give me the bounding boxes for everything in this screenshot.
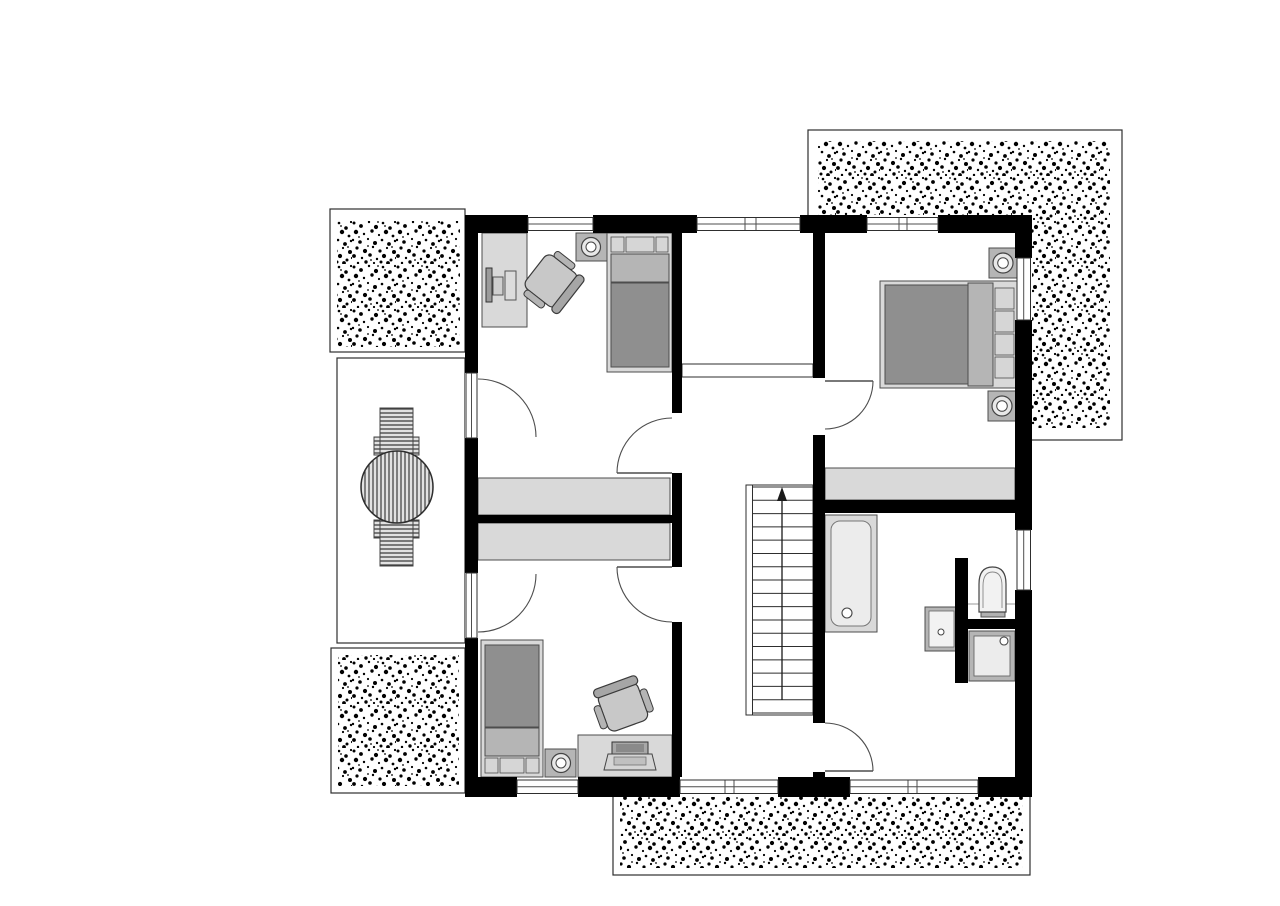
round-parasol <box>361 451 433 523</box>
wardrobe-top-room <box>478 478 670 515</box>
roof-area-bottom-left <box>331 648 465 793</box>
shower <box>969 631 1015 681</box>
floor-plan-page <box>0 0 1280 906</box>
window <box>528 218 593 231</box>
single-bed <box>481 640 543 777</box>
nightstand <box>576 233 607 261</box>
nightstand <box>989 248 1017 278</box>
window <box>850 780 978 794</box>
laptop <box>604 742 656 770</box>
drain-icon <box>1000 637 1008 645</box>
nightstand <box>545 749 576 777</box>
window <box>517 780 578 794</box>
window <box>680 780 778 794</box>
balcony-door-frame <box>466 573 477 638</box>
bathtub <box>825 515 877 632</box>
single-bed <box>607 233 672 372</box>
window <box>867 218 938 231</box>
nightstand <box>988 391 1016 421</box>
roof-area-top-left <box>330 209 465 352</box>
stipple-texture <box>338 655 459 786</box>
stipple-texture <box>337 221 460 347</box>
stipple-texture <box>620 797 1023 868</box>
drain-icon <box>842 608 852 618</box>
balcony <box>337 358 465 643</box>
floor-plan-drawing <box>0 0 1280 906</box>
double-bed <box>880 281 1017 388</box>
window <box>697 218 800 231</box>
window <box>1017 530 1031 590</box>
roof-area-bottom <box>613 790 1030 875</box>
drain-icon <box>938 629 944 635</box>
wardrobe-bottom-room <box>478 523 670 560</box>
window <box>1017 258 1031 320</box>
washbasin <box>925 607 958 651</box>
knee-wall-storage <box>825 468 1015 500</box>
toilet <box>979 567 1006 617</box>
balcony-door-frame <box>466 373 477 438</box>
